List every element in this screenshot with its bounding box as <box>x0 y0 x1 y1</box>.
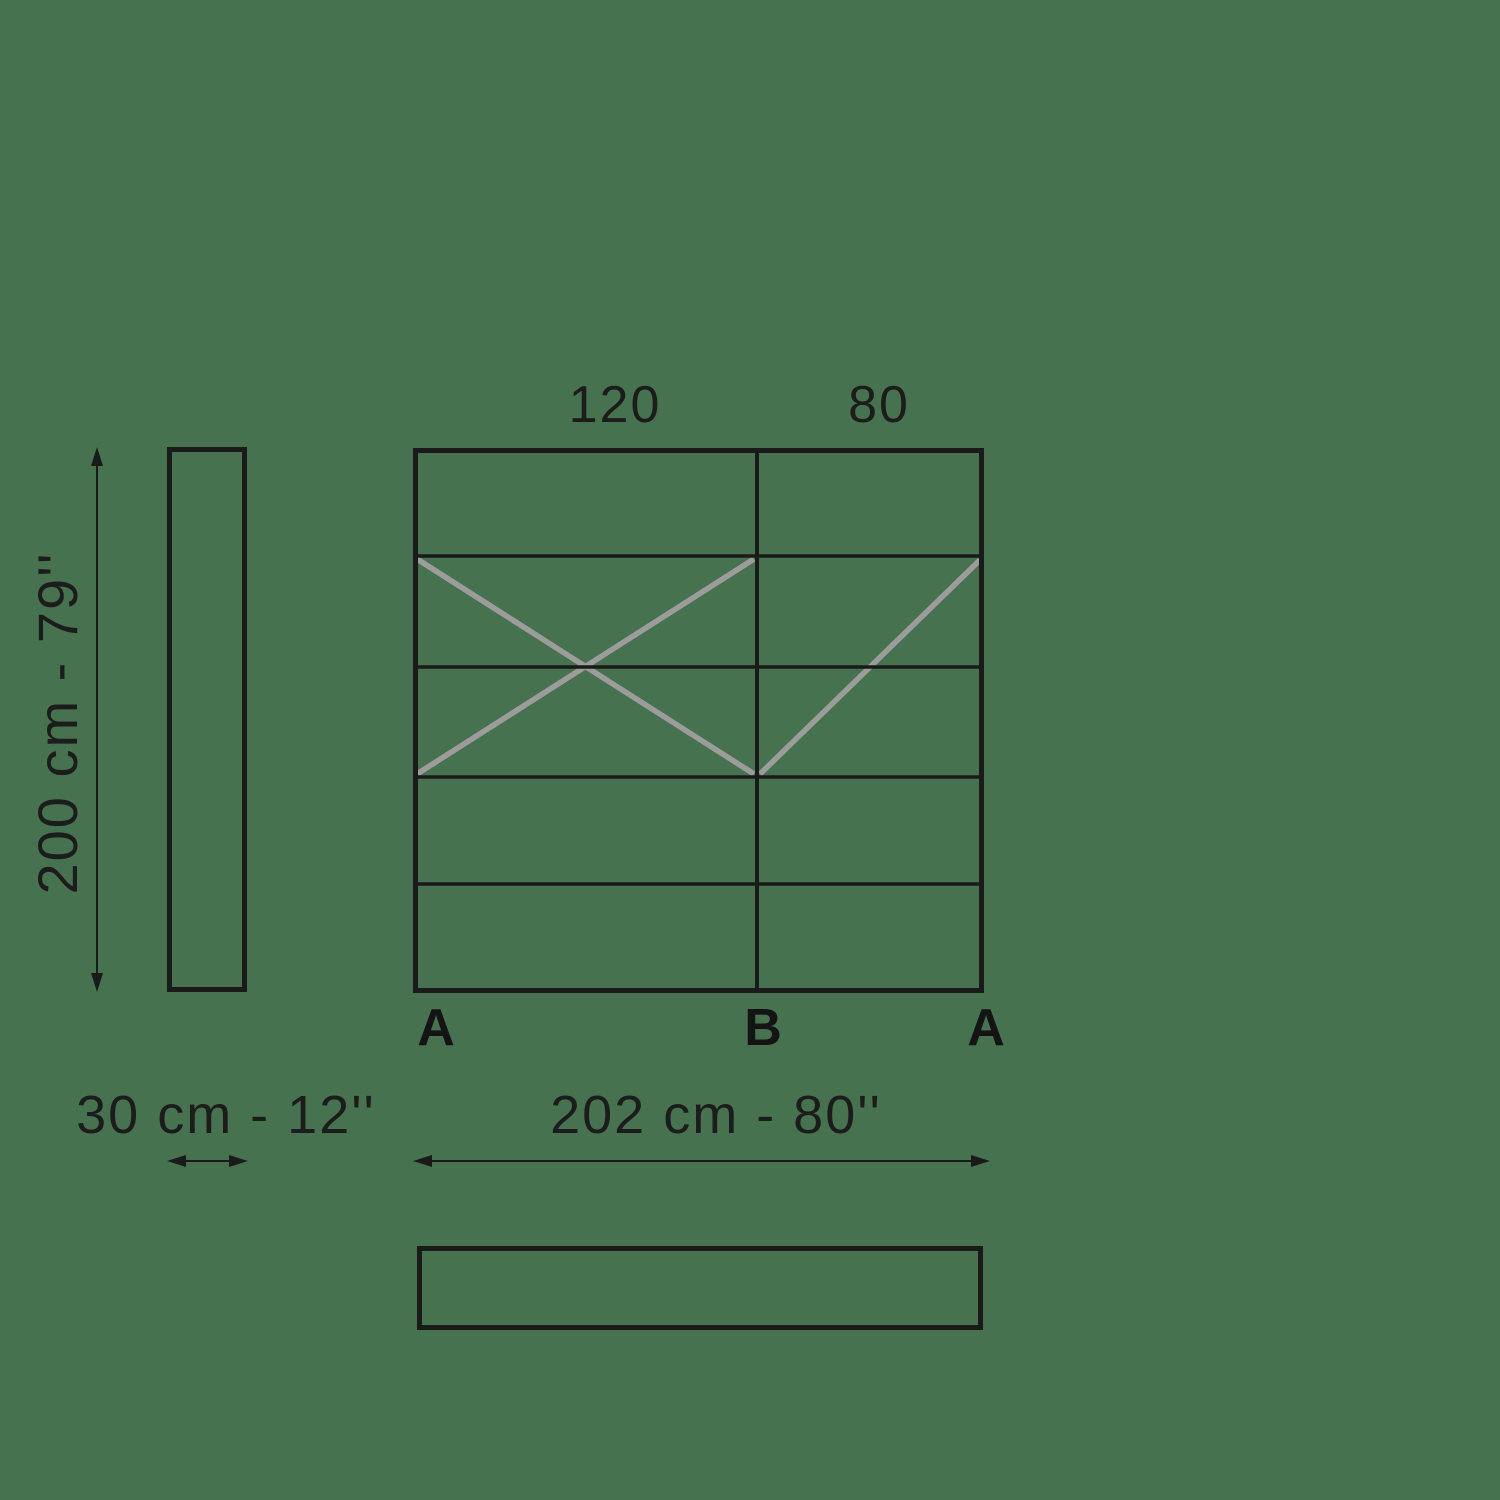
arrow-right-icon <box>971 1155 990 1167</box>
side-view <box>170 450 245 990</box>
arrow-down-icon <box>91 973 103 992</box>
section-marker-a-left: A <box>396 1002 476 1054</box>
side-panel-outline <box>170 450 245 990</box>
arrow-left-icon <box>167 1155 186 1167</box>
depth-dimension-label: 30 cm - 12'' <box>66 1086 386 1144</box>
width-dimension-label: 202 cm - 80'' <box>516 1086 916 1144</box>
depth-dimension-arrow <box>167 1155 248 1167</box>
height-dimension-arrow <box>91 447 103 992</box>
section-marker-a-right: A <box>946 1002 1026 1054</box>
arrow-left-icon <box>413 1155 432 1167</box>
section-marker-b: B <box>723 1002 803 1054</box>
front-view <box>416 451 982 992</box>
column-width-label-120: 120 <box>555 378 675 432</box>
arrow-right-icon <box>229 1155 248 1167</box>
arrow-up-icon <box>91 447 103 466</box>
top-view-outline <box>420 1249 981 1328</box>
column-width-label-80: 80 <box>819 378 939 432</box>
width-dimension-arrow <box>413 1155 990 1167</box>
line-art <box>0 0 1500 1500</box>
top-view <box>420 1249 981 1328</box>
height-dimension-label: 200 cm - 79'' <box>27 513 89 933</box>
technical-drawing-canvas: 120 80 A B A 200 cm - 79'' 30 cm - 12'' … <box>0 0 1500 1500</box>
